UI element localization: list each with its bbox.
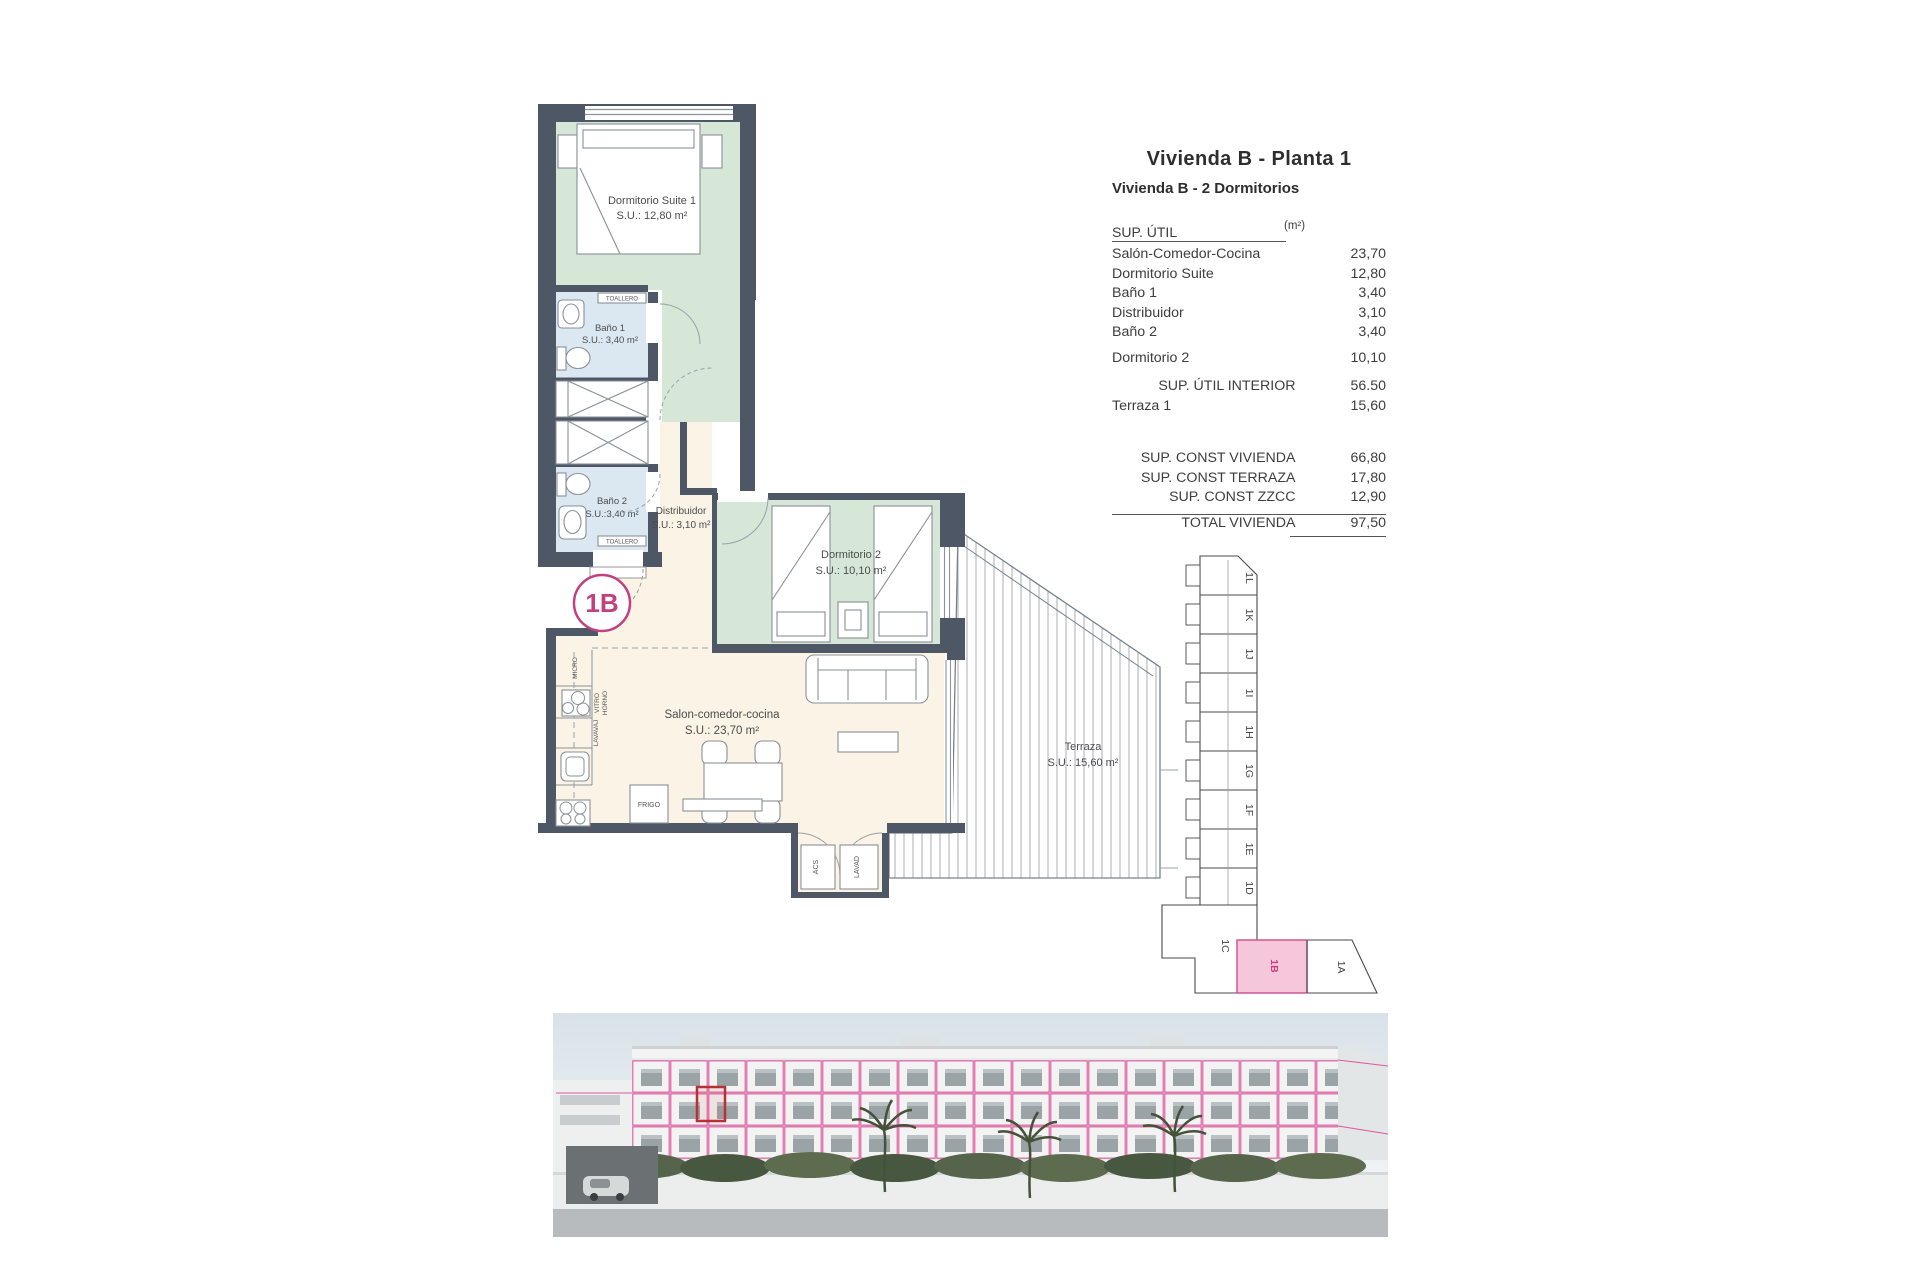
row-value: 3,10 (1358, 305, 1386, 321)
render-road (553, 1209, 1388, 1237)
row-value: 66,80 (1350, 450, 1386, 466)
row-label: TOTAL VIVIENDA (1112, 515, 1295, 531)
unit-badge: 1B (574, 575, 630, 631)
total-value-rule (1290, 536, 1386, 537)
unit-badge-label: 1B (585, 588, 618, 618)
key-plan: 1L 1K 1J 1I 1H 1G 1F 1E 1D 1C 1B 1A (1162, 556, 1377, 993)
row-label: SUP. CONST ZZCC (1112, 489, 1295, 505)
sheet-title: Vivienda B - Planta 1 (1112, 148, 1386, 171)
room-area-terraza: S.U.: 15,60 m² (1048, 757, 1119, 769)
table-header-rule (1112, 241, 1286, 242)
room-label-dorm2: Dormitorio 2 (821, 549, 881, 561)
fixture-vitro: VITRO (594, 693, 601, 713)
row-value: 3,40 (1358, 285, 1386, 301)
table-header: SUP. ÚTIL (m²) (1112, 222, 1386, 242)
render-hedges (592, 1152, 1366, 1182)
row-value: 97,50 (1350, 515, 1386, 531)
suite-furniture (558, 124, 722, 254)
row-label: Terraza 1 (1112, 398, 1171, 414)
row-label: Salón-Comedor-Cocina (1112, 246, 1260, 262)
table-row: Dormitorio 2 10,10 (1112, 350, 1386, 370)
room-area-bano1: S.U.: 3,40 m² (582, 335, 638, 346)
room-suite-corridor (662, 290, 740, 422)
render-pink-unit-grid (632, 1060, 1338, 1159)
key-unit-label: 1F (1243, 804, 1255, 816)
area-table: Salón-Comedor-Cocina 23,70 Dormitorio Su… (1112, 246, 1386, 537)
row-label: Baño 2 (1112, 324, 1157, 340)
room-label-distribuidor: Distribuidor (656, 506, 707, 517)
render-highlight-unit (697, 1087, 725, 1121)
table-row: Baño 2 3,40 (1112, 324, 1386, 344)
fixture-horno: HORNO (602, 691, 609, 715)
row-label: SUP. CONST VIVIENDA (1112, 450, 1295, 466)
room-area-dorm2: S.U.: 10,10 m² (816, 565, 887, 577)
room-label-terraza: Terraza (1065, 741, 1103, 753)
row-value: 12,80 (1350, 266, 1386, 282)
key-unit-label: 1H (1243, 725, 1255, 738)
floor-plan: Terraza S.U.: 15,60 m² (538, 104, 1178, 898)
table-row: Salón-Comedor-Cocina 23,70 (1112, 246, 1386, 266)
table-row-total: TOTAL VIVIENDA 97,50 (1112, 515, 1386, 535)
table-row: Dormitorio Suite 12,80 (1112, 266, 1386, 286)
key-unit-label: 1L (1243, 572, 1255, 584)
table-header-label: SUP. ÚTIL (1112, 224, 1177, 240)
row-value: 3,40 (1358, 324, 1386, 340)
sheet-subtitle: Vivienda B - 2 Dormitorios (1112, 180, 1386, 197)
key-unit-label: 1A (1335, 961, 1347, 974)
row-label: Distribuidor (1112, 305, 1184, 321)
key-unit-label: 1E (1243, 843, 1255, 856)
table-row: Baño 1 3,40 (1112, 285, 1386, 305)
key-unit-label: 1D (1243, 881, 1255, 895)
key-unit-label: 1J (1243, 648, 1255, 659)
row-label: SUP. CONST TERRAZA (1112, 470, 1295, 486)
fixture-micro: MICRO (572, 657, 579, 679)
plan-sheet-canvas: Terraza S.U.: 15,60 m² (0, 0, 1920, 1280)
room-area-suite: S.U.: 12,80 m² (617, 210, 688, 222)
row-label: Baño 1 (1112, 285, 1157, 301)
table-row-const: SUP. CONST VIVIENDA 66,80 (1112, 450, 1386, 470)
key-unit-label: 1I (1243, 689, 1255, 698)
building-render (553, 1013, 1388, 1237)
row-value: 15,60 (1350, 398, 1386, 414)
room-label-bano2: Baño 2 (597, 496, 627, 507)
key-unit-label: 1G (1243, 764, 1255, 778)
table-row-const: SUP. CONST TERRAZA 17,80 (1112, 470, 1386, 490)
table-row-const: SUP. CONST ZZCC 12,90 (1112, 489, 1386, 509)
table-row: Distribuidor 3,10 (1112, 305, 1386, 325)
row-value: 17,80 (1350, 470, 1386, 486)
room-area-distribuidor: S.U.: 3,10 m² (652, 520, 712, 531)
room-area-salon: S.U.: 23,70 m² (685, 725, 759, 737)
table-header-unit: (m²) (1284, 220, 1305, 232)
row-label: Dormitorio 2 (1112, 350, 1189, 366)
fixture-toallero-2: TOALLERO (606, 540, 638, 546)
row-value: 10,10 (1350, 350, 1386, 366)
row-value: 12,90 (1350, 489, 1386, 505)
construction-totals: SUP. CONST VIVIENDA 66,80 SUP. CONST TER… (1112, 450, 1386, 537)
table-row-subtotal: SUP. ÚTIL INTERIOR 56.50 (1112, 378, 1386, 398)
key-unit-label: 1K (1243, 609, 1255, 622)
wardrobes (556, 381, 648, 464)
fixture-toallero-1: TOALLERO (606, 297, 638, 303)
row-label: Dormitorio Suite (1112, 266, 1214, 282)
room-area-bano2: S.U.:3,40 m² (585, 509, 638, 520)
room-label-salon: Salon-comedor-cocina (664, 709, 780, 721)
key-unit-label-1b: 1B (1268, 959, 1280, 973)
fixture-frigo: FRIGO (638, 802, 661, 809)
row-value: 23,70 (1350, 246, 1386, 262)
row-value: 56.50 (1350, 378, 1386, 394)
row-label: SUP. ÚTIL INTERIOR (1112, 378, 1295, 394)
area-summary-panel: Vivienda B - Planta 1 Vivienda B - 2 Dor… (1112, 148, 1386, 537)
table-row: Terraza 1 15,60 (1112, 398, 1386, 418)
key-unit-label: 1C (1219, 939, 1231, 953)
fixture-lavavaj: LAVAVAJ (593, 720, 600, 747)
fixture-acs: ACS (813, 859, 820, 874)
fixture-lavad: LAVAD (854, 856, 861, 878)
room-label-suite: Dormitorio Suite 1 (608, 195, 696, 207)
room-label-bano1: Baño 1 (595, 323, 625, 334)
